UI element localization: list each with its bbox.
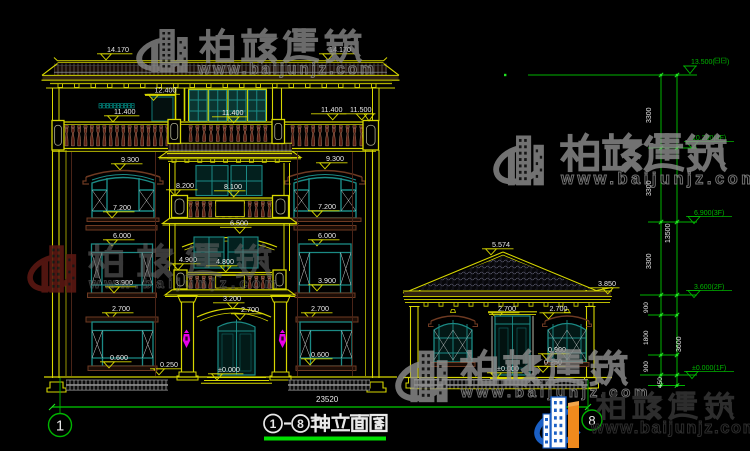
svg-text:7.200: 7.200	[318, 202, 336, 211]
svg-text:23520: 23520	[316, 395, 339, 404]
svg-text:8.100: 8.100	[224, 182, 242, 191]
svg-text:6.900(3F): 6.900(3F)	[694, 210, 724, 217]
svg-text:2.700: 2.700	[241, 305, 259, 314]
svg-text:9.300: 9.300	[121, 155, 139, 164]
svg-text:2.700: 2.700	[311, 304, 329, 313]
svg-text:6.500: 6.500	[230, 219, 248, 228]
svg-text:0.600: 0.600	[311, 350, 329, 359]
svg-text:3.600(2F): 3.600(2F)	[694, 284, 724, 291]
svg-text:8.200: 8.200	[176, 181, 194, 190]
svg-text:www.baijunjz.com: www.baijunjz.com	[560, 170, 750, 188]
svg-text:13500: 13500	[665, 223, 672, 243]
svg-text:11.400: 11.400	[114, 107, 135, 116]
svg-text:±0.000: ±0.000	[218, 365, 240, 374]
svg-text:3.900: 3.900	[318, 276, 336, 285]
svg-text:8: 8	[297, 417, 304, 431]
svg-text:4.800: 4.800	[216, 257, 234, 266]
svg-text:1: 1	[270, 417, 277, 431]
svg-text:13.500(: 13.500(	[691, 59, 715, 66]
svg-text:3300: 3300	[646, 253, 653, 269]
svg-text:12.400: 12.400	[155, 86, 177, 95]
svg-text:3600: 3600	[676, 336, 683, 352]
svg-text:1800: 1800	[643, 330, 650, 345]
svg-text:3.850: 3.850	[598, 279, 616, 288]
svg-text:www.baijunjz.com: www.baijunjz.com	[197, 61, 377, 78]
svg-text:3300: 3300	[646, 107, 653, 123]
svg-text:900: 900	[643, 302, 650, 313]
svg-text:1: 1	[56, 418, 64, 435]
svg-text:11.500: 11.500	[350, 105, 371, 114]
svg-text:0.600: 0.600	[110, 353, 128, 362]
svg-text:6.000: 6.000	[318, 231, 336, 240]
svg-text:0.250: 0.250	[160, 360, 178, 369]
svg-text:2.700: 2.700	[112, 304, 130, 313]
svg-text:14.170: 14.170	[107, 45, 129, 54]
svg-text:www.baijunjz.com: www.baijunjz.com	[590, 419, 750, 437]
svg-text:900: 900	[643, 361, 650, 372]
svg-text:7.200: 7.200	[113, 203, 131, 212]
svg-text:3.200: 3.200	[223, 294, 241, 303]
svg-text:450: 450	[657, 377, 664, 388]
svg-text:±0.000(1F): ±0.000(1F)	[692, 365, 726, 372]
svg-text:): )	[727, 59, 729, 66]
svg-text:5.574: 5.574	[492, 240, 510, 249]
svg-text:6.000: 6.000	[113, 231, 131, 240]
svg-text:9.300: 9.300	[326, 154, 344, 163]
svg-text:www.baijunjz.com: www.baijunjz.com	[88, 275, 282, 291]
svg-text:11.400: 11.400	[321, 105, 342, 114]
svg-text:11.400: 11.400	[222, 108, 243, 117]
svg-text:2.700: 2.700	[550, 304, 568, 313]
